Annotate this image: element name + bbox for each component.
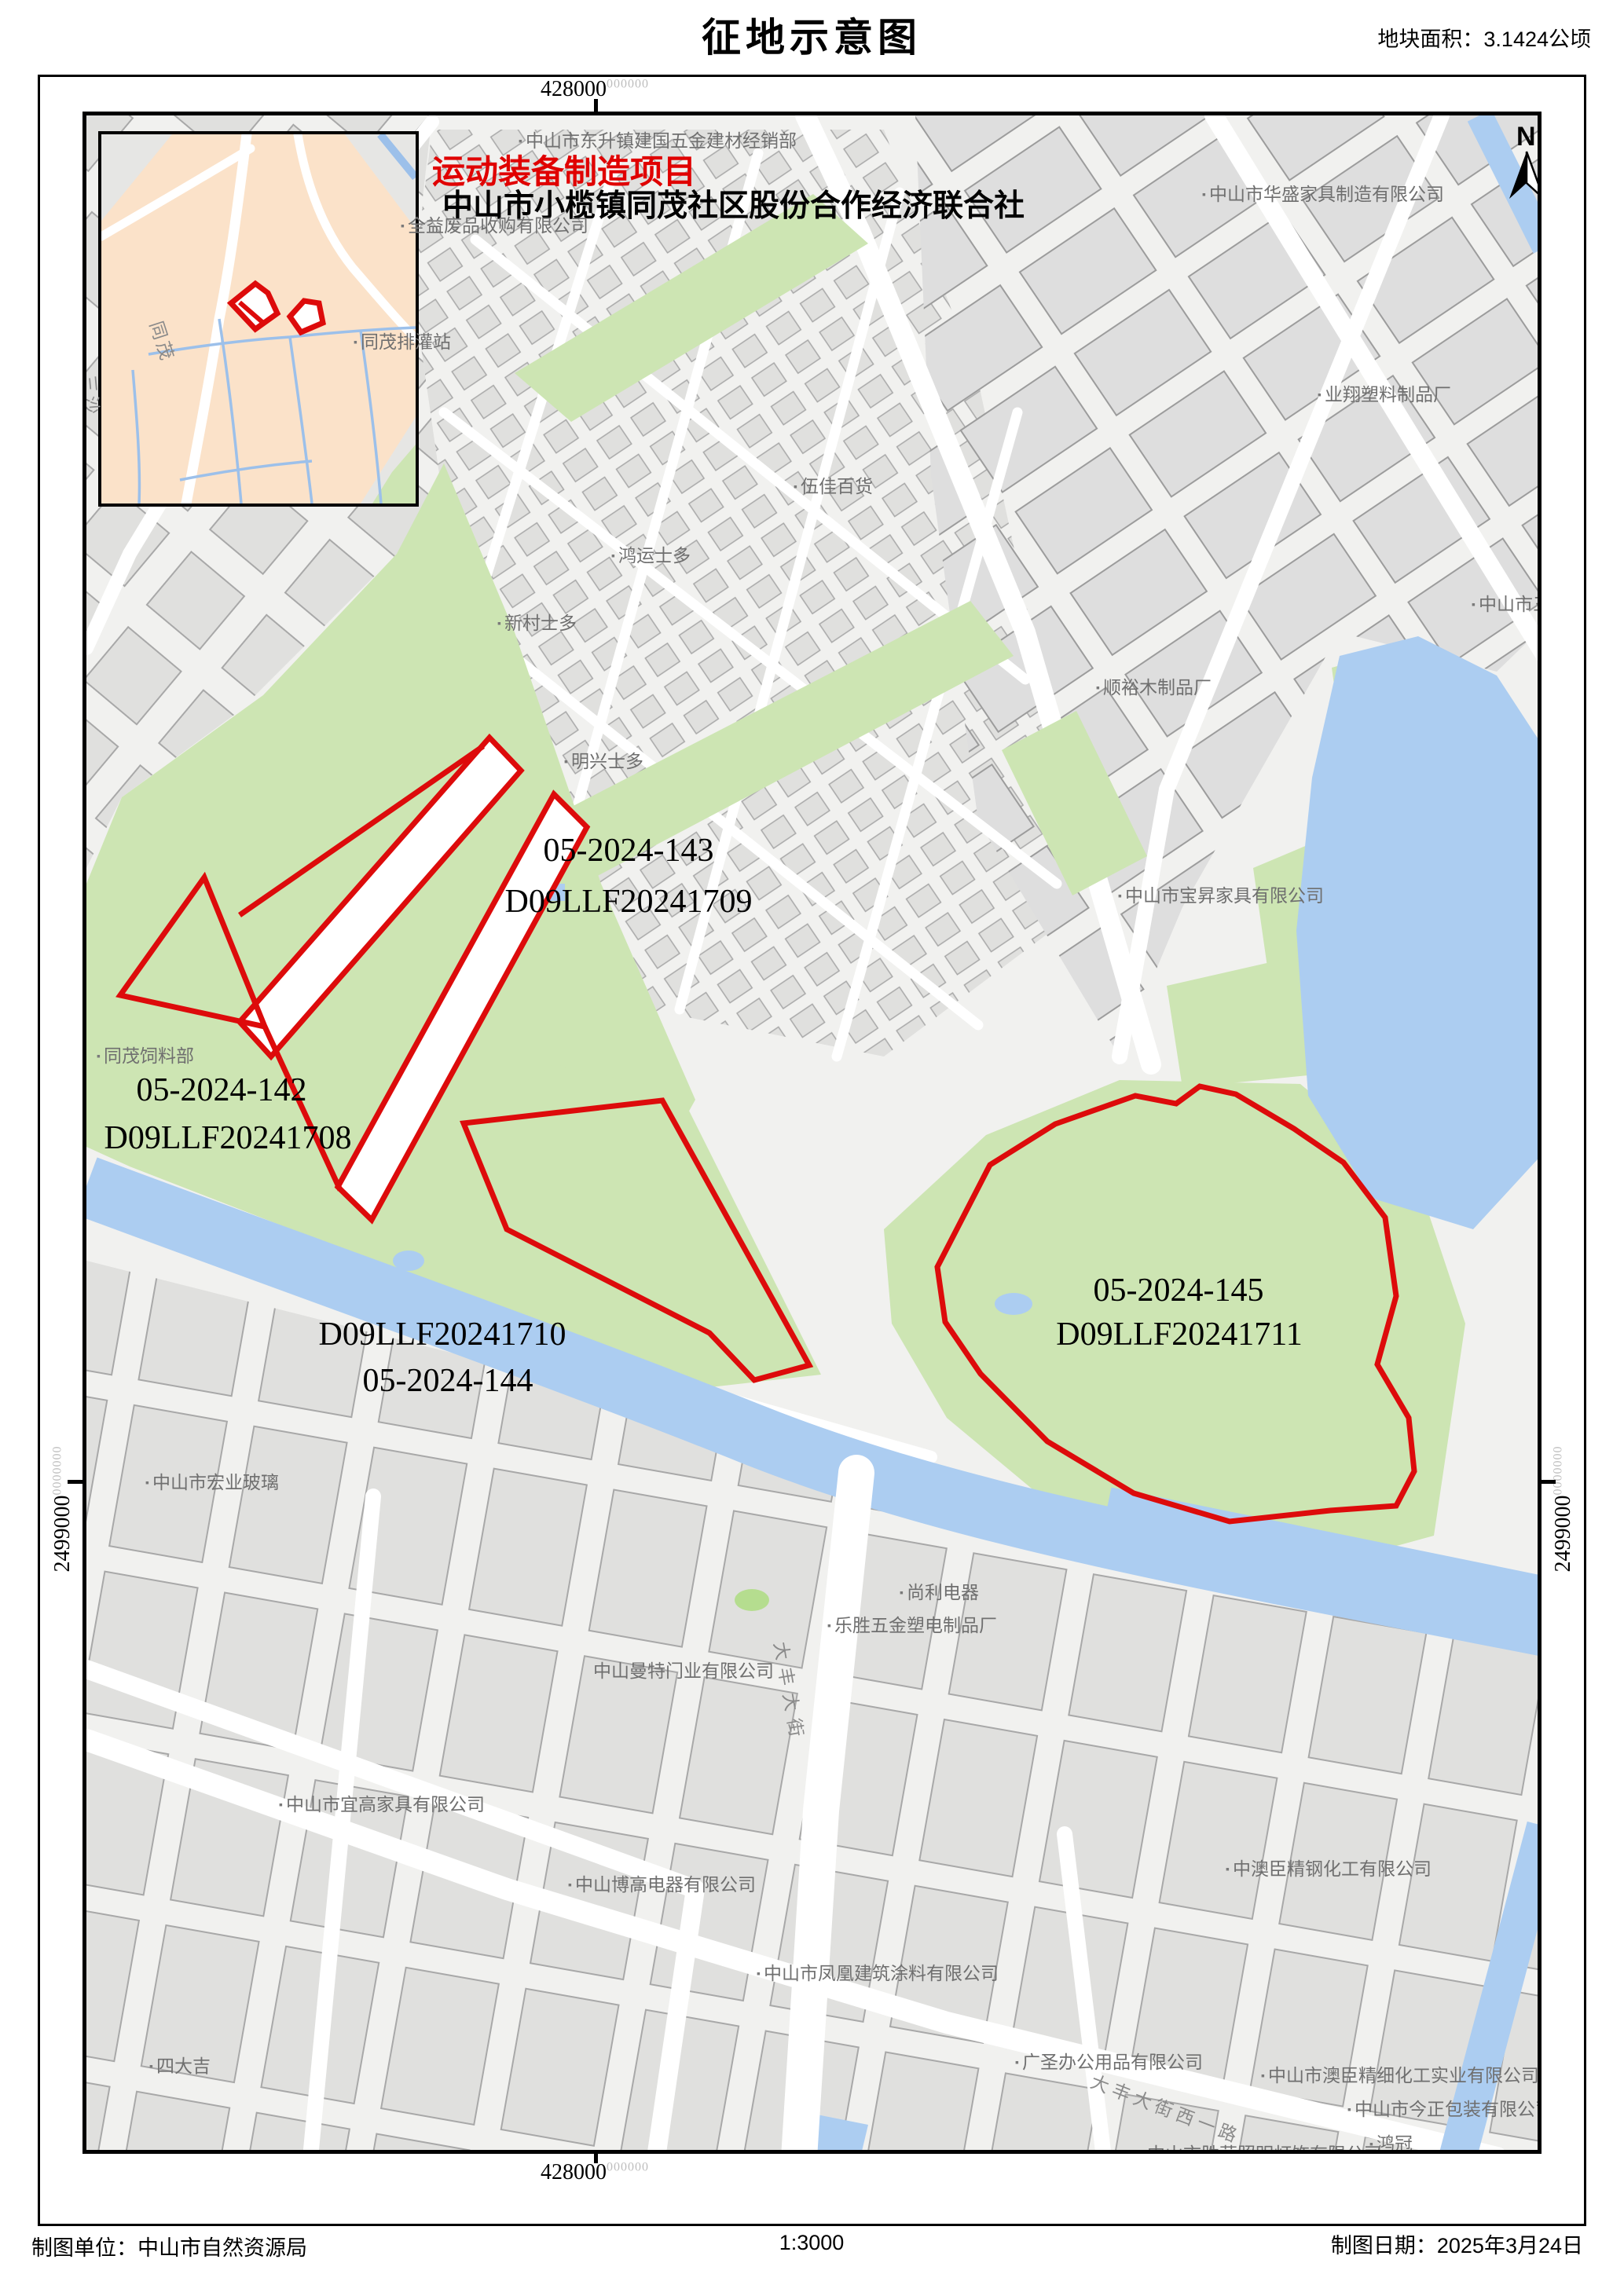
parcel-142-id: 05-2024-142: [137, 1071, 307, 1109]
coord-left-sup: 0000000: [51, 1446, 64, 1496]
map-label: 中山市凤凰建筑涂料有限公司: [757, 1958, 999, 1985]
map-label: 同茂饲料部: [97, 1041, 194, 1067]
map-label: 明兴士多: [564, 746, 643, 773]
inset-map-svg: [101, 134, 416, 504]
page-title: 征地示意图: [702, 6, 922, 63]
map-label: 同茂排灌站: [354, 327, 451, 353]
parcel-143-code: D09LLF20241709: [505, 883, 753, 921]
coord-left-tick: [68, 1480, 83, 1484]
coord-bottom-value: 428000: [541, 2160, 607, 2184]
coord-left: 24990000000000: [50, 1419, 75, 1599]
coord-right-value: 2499000: [1551, 1496, 1575, 1573]
map-sheet: 征地示意图 地块面积：3.1424公顷 428000000000 4280000…: [0, 0, 1624, 2296]
map-label: 中山市胜荣照明灯饰有限公司: [1147, 2139, 1382, 2154]
parcel-144-id: 05-2024-144: [363, 1362, 533, 1400]
area-note: 地块面积：3.1424公顷: [1377, 22, 1591, 53]
inset-locator-map: [98, 131, 419, 507]
map-label: 广圣办公用品有限公司: [1015, 2047, 1203, 2074]
map-label: 中山曼特门业有限公司: [593, 1656, 774, 1683]
map-label: 中山市宝昇家具有限公司: [1118, 881, 1324, 907]
coord-bottom: 428000000000: [541, 2160, 649, 2185]
parcel-142-code: D09LLF20241708: [104, 1119, 352, 1157]
map-label: 中山博高电器有限公司: [568, 1869, 756, 1896]
map-label: 伍佳百货: [794, 471, 873, 498]
parcel-144-code: D09LLF20241710: [319, 1316, 566, 1353]
map-label: 四大吉: [149, 2051, 211, 2078]
road-label-sansha: 三沙: [82, 374, 108, 419]
map-label: 顺裕木制品厂: [1096, 672, 1212, 699]
map-label: 中山市今正包装有限公司: [1347, 2094, 1542, 2121]
coord-right: 24990000000000: [1551, 1419, 1576, 1599]
map-label: 中山市华盛家具制造有限公司: [1202, 179, 1444, 206]
map-label: 新村士多: [497, 608, 577, 635]
map-label: 鸿运士多: [611, 540, 691, 567]
coord-left-value: 2499000: [50, 1496, 75, 1573]
coord-top-value: 428000: [541, 77, 607, 101]
map-label: 中山市宏业玻璃: [145, 1467, 279, 1494]
coord-right-tick: [1540, 1480, 1556, 1484]
parcel-143-id: 05-2024-143: [544, 832, 714, 870]
map-canvas: N 运动装备制造项目 中山市小榄镇同茂社区股份合作经济联合社 05-2024-1…: [86, 115, 1542, 2154]
map-label: 中山市东升镇建国五金建材经销部: [519, 126, 797, 152]
coord-right-sup: 0000000: [1552, 1446, 1565, 1496]
map-label: 业翔塑料制品厂: [1318, 379, 1451, 406]
footer-scale: 1:3000: [779, 2231, 845, 2255]
footer-agency: 制图单位：中山市自然资源局: [31, 2231, 307, 2261]
map-frame: N 运动装备制造项目 中山市小榄镇同茂社区股份合作经济联合社 05-2024-1…: [82, 112, 1542, 2154]
north-arrow-label: N: [1516, 122, 1536, 152]
map-label: 全益废品收购有限公司: [401, 211, 588, 237]
coord-bottom-sup: 000000: [607, 2161, 649, 2174]
map-label: 乐胜五金塑电制品厂: [827, 1610, 997, 1637]
map-label: 尚利电器: [900, 1577, 979, 1604]
coord-top-sup: 000000: [607, 78, 649, 91]
parcel-145-id: 05-2024-145: [1094, 1272, 1264, 1309]
map-label: 中山市宜高家具有限公司: [279, 1789, 485, 1816]
parcel-145-code: D09LLF20241711: [1056, 1316, 1302, 1353]
footer-date: 制图日期：2025年3月24日: [1331, 2228, 1583, 2259]
map-label: 中澳臣精钢化工有限公司: [1226, 1854, 1432, 1880]
map-label: 中山市三禾: [1472, 589, 1542, 616]
map-label: 中山市澳臣精细化工实业有限公司: [1261, 2060, 1539, 2087]
